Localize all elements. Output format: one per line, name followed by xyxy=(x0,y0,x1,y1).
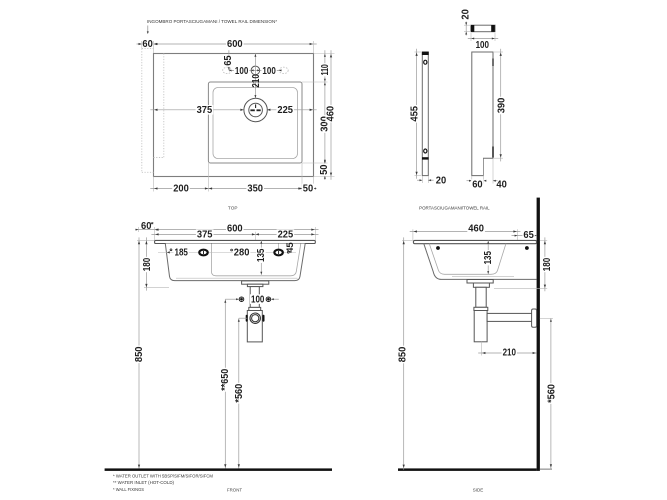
svg-text:350: 350 xyxy=(247,184,263,195)
svg-text:100: 100 xyxy=(251,294,264,305)
svg-text:20: 20 xyxy=(460,9,471,19)
svg-text:65: 65 xyxy=(523,230,534,241)
svg-text:850: 850 xyxy=(397,347,408,363)
svg-text:185: 185 xyxy=(175,247,189,258)
svg-text:110: 110 xyxy=(320,64,331,75)
svg-text:460: 460 xyxy=(468,224,484,235)
svg-text:40: 40 xyxy=(496,179,506,190)
svg-text:*560: *560 xyxy=(234,384,245,403)
svg-text:100: 100 xyxy=(476,40,489,51)
svg-text:INGOMBRO PORTASCIUGAMANI / TOW: INGOMBRO PORTASCIUGAMANI / TOWEL RAIL DI… xyxy=(147,19,277,25)
svg-text:600: 600 xyxy=(227,224,243,235)
svg-text:135: 135 xyxy=(483,250,494,264)
svg-text:600: 600 xyxy=(227,39,243,50)
svg-text:210: 210 xyxy=(503,348,516,359)
svg-text:20: 20 xyxy=(436,176,446,187)
svg-text:* WALL FIXINGS: * WALL FIXINGS xyxy=(113,487,144,492)
svg-text:**650: **650 xyxy=(220,369,231,391)
svg-text:455: 455 xyxy=(409,105,420,121)
svg-text:850: 850 xyxy=(134,347,145,363)
svg-text:FRONT: FRONT xyxy=(227,487,242,492)
svg-text:45: 45 xyxy=(285,242,295,252)
svg-text:280: 280 xyxy=(234,247,250,258)
svg-text:50: 50 xyxy=(319,165,330,175)
svg-text:100: 100 xyxy=(235,66,248,77)
svg-text:TOP: TOP xyxy=(228,205,238,210)
svg-text:*560: *560 xyxy=(546,384,557,403)
svg-text:180: 180 xyxy=(142,258,153,271)
svg-text:210: 210 xyxy=(251,74,262,87)
svg-text:* WATER OUTLET WITH 5BSP/SIFM: * WATER OUTLET WITH 5BSP/SIFM/SIFOR/SIFC… xyxy=(113,474,214,479)
svg-text:390: 390 xyxy=(496,98,507,114)
svg-text:375: 375 xyxy=(197,230,213,241)
svg-text:50: 50 xyxy=(303,184,313,195)
svg-text:225: 225 xyxy=(277,105,293,116)
svg-text:375: 375 xyxy=(197,105,213,116)
svg-text:100: 100 xyxy=(262,66,275,77)
svg-text:200: 200 xyxy=(173,184,189,195)
svg-text:135: 135 xyxy=(256,248,267,262)
svg-text:** WATER INLET (HOT-COLD): ** WATER INLET (HOT-COLD) xyxy=(113,480,175,485)
svg-text:225: 225 xyxy=(278,230,294,241)
svg-text:PORTASCIUGAMANI/TOWEL RAIL: PORTASCIUGAMANI/TOWEL RAIL xyxy=(419,206,490,211)
svg-text:60: 60 xyxy=(472,179,482,190)
svg-text:460: 460 xyxy=(325,106,336,122)
svg-text:SIDE: SIDE xyxy=(473,487,484,492)
svg-text:65: 65 xyxy=(223,55,234,66)
svg-text:180: 180 xyxy=(542,258,553,271)
